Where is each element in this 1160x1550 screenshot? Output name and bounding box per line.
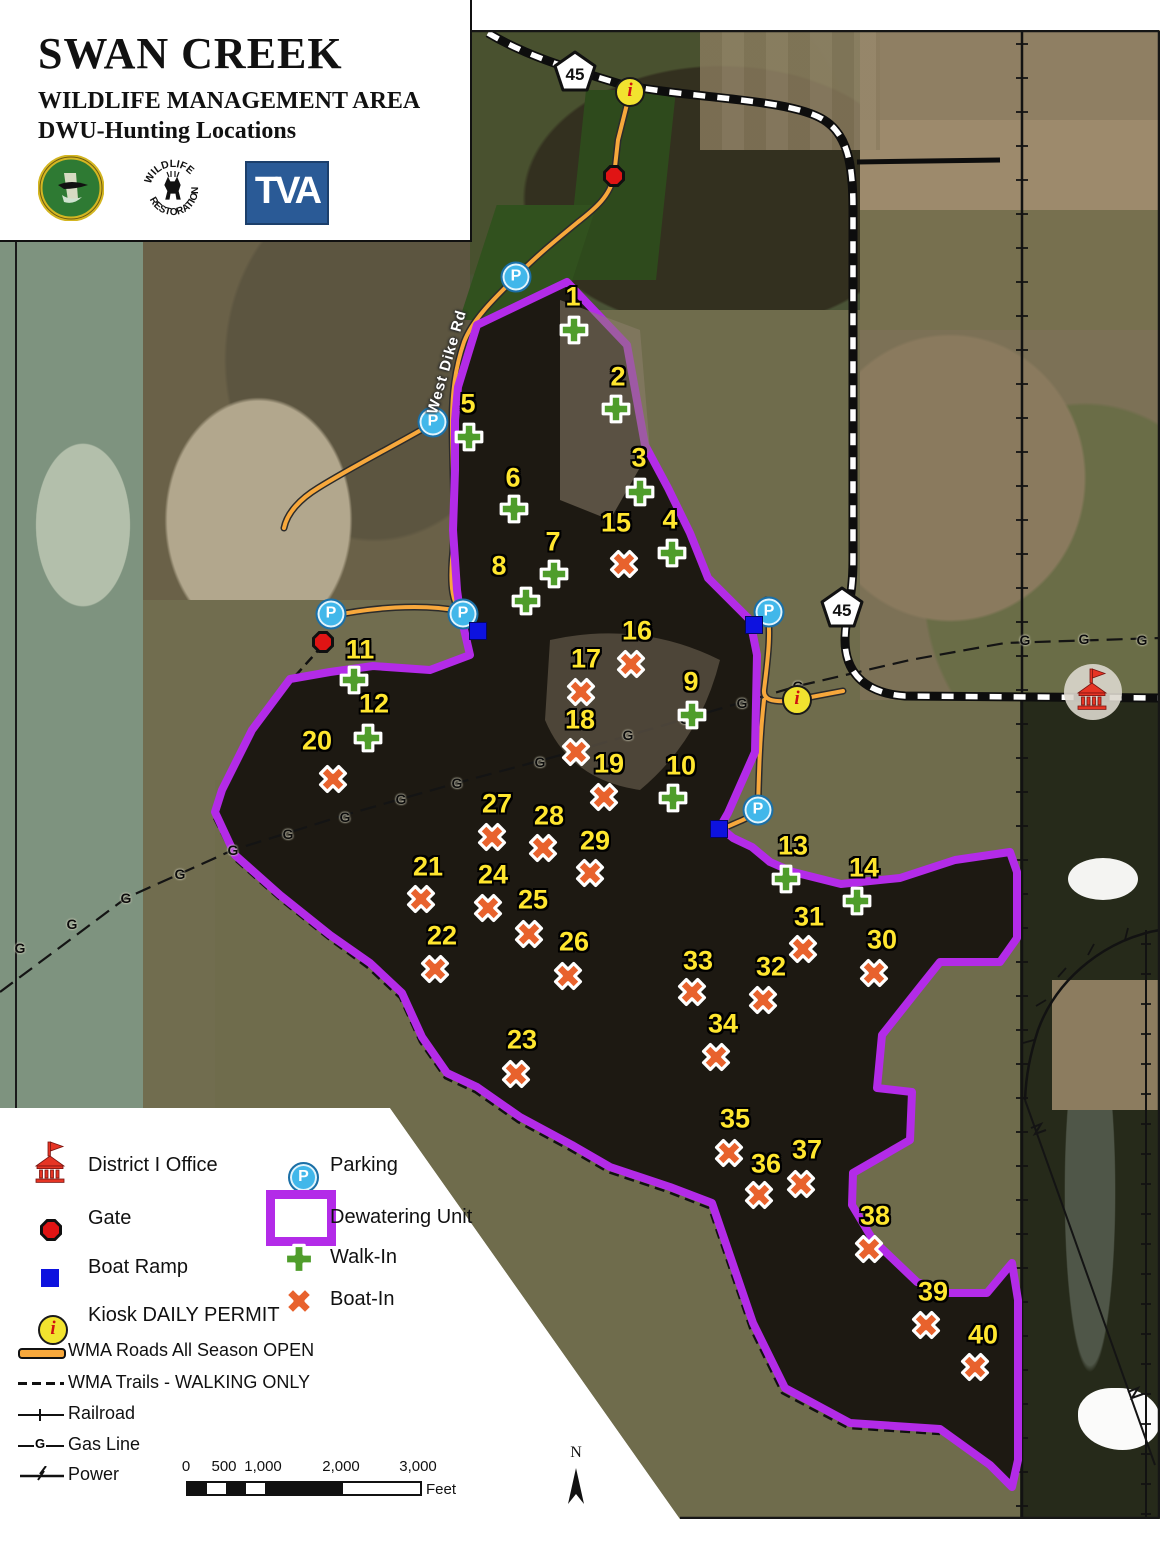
gas-line-label: G [1079,631,1090,647]
legend-label: Railroad [68,1403,135,1424]
marker-number-12: 12 [359,689,389,720]
marker-number-17: 17 [571,644,601,675]
gas-line-label: G [623,727,634,743]
marker-number-16: 16 [622,616,652,647]
parking-icon: P [316,599,347,630]
gasline-icon: G [18,1445,64,1447]
power-icon [18,1466,66,1491]
marker-number-31: 31 [794,902,824,933]
railroad-ticks [1016,44,1151,1514]
marker-number-15: 15 [601,508,631,539]
gas-line-label: G [1137,632,1148,648]
marker-number-13: 13 [778,831,808,862]
kiosk-icon: i [782,685,812,715]
north-arrow: N [556,1444,596,1514]
marker-number-20: 20 [302,726,332,757]
legend-label: Parking [330,1154,398,1177]
wildlife-restoration-logo: WILDLIFE RESTORATION [138,155,208,230]
marker-number-32: 32 [756,952,786,983]
marker-number-40: 40 [968,1320,998,1351]
legend-label: Boat-In [330,1288,394,1311]
legend-label: Boat Ramp [88,1256,188,1279]
walk-in-icon [282,1242,316,1281]
marker-number-7: 7 [545,527,560,558]
map-title: SWAN CREEK [38,28,343,79]
legend-label: Gas Line [68,1434,140,1455]
legend-label: WMA Trails - WALKING ONLY [68,1372,310,1393]
marker-number-28: 28 [534,801,564,832]
power-line-southeast [1025,1100,1155,1465]
svg-text:45: 45 [833,601,852,620]
office-icon [30,1140,70,1189]
marker-number-3: 3 [631,443,646,474]
marker-number-38: 38 [860,1201,890,1232]
marker-number-5: 5 [460,389,475,420]
alabama-wildlife-logo [38,155,104,226]
gas-line-label: G [737,695,748,711]
marker-number-1: 1 [565,282,580,313]
legend-label: District I Office [88,1154,218,1177]
marker-number-8: 8 [491,551,506,582]
logo-row: WILDLIFE RESTORATION TVA [30,155,450,235]
marker-number-35: 35 [720,1104,750,1135]
marker-number-24: 24 [478,860,508,891]
gas-line-label: G [67,916,78,932]
marker-number-11: 11 [346,635,375,666]
gas-line-label: G [121,890,132,906]
scale-tick: 2,000 [322,1458,360,1475]
marker-number-14: 14 [849,853,879,884]
marker-number-22: 22 [427,921,457,952]
marker-number-21: 21 [413,852,443,883]
scale-tick: 1,000 [244,1458,282,1475]
marker-number-36: 36 [751,1149,781,1180]
parking-icon: P [501,262,532,293]
scale-bar: 0 500 1,000 2,000 3,000 Feet [180,1458,510,1506]
gas-line-label: G [340,809,351,825]
gate-icon [40,1219,62,1241]
scale-tick: 3,000 [399,1458,437,1475]
boat-ramp-icon [710,820,728,838]
scale-tick: 0 [182,1458,190,1475]
railroad-branch [1025,930,1160,1100]
scale-unit: Feet [426,1481,456,1498]
gas-line-label: G [1020,632,1031,648]
gas-line-label: G [228,842,239,858]
map-subtitle-1: WILDLIFE MANAGEMENT AREA [38,88,420,115]
legend-label: Power [68,1464,119,1485]
marker-number-10: 10 [666,751,696,782]
boat-ramp-icon [41,1269,59,1287]
scale-tick: 500 [211,1458,236,1475]
gas-line-label: G [175,866,186,882]
north-arrow-icon [556,1462,596,1508]
marker-number-9: 9 [683,667,698,698]
north-label: N [556,1444,596,1462]
deer-silhouette [165,171,180,199]
marker-number-37: 37 [792,1135,822,1166]
gas-line-label: G [452,775,463,791]
marker-number-25: 25 [518,885,548,916]
marker-number-6: 6 [505,463,520,494]
map-page: GGGGGGGGGGGGGGGGGG PPPPPPii 45 45 123456… [0,0,1160,1550]
title-block: SWAN CREEK WILDLIFE MANAGEMENT AREA DWU-… [0,0,472,242]
marker-number-26: 26 [559,927,589,958]
map-subtitle-2: DWU-Hunting Locations [38,118,296,145]
legend-label: Dewatering Unit [330,1206,472,1229]
parking-icon: P [743,795,774,826]
tva-logo: TVA [245,161,329,225]
marker-number-39: 39 [918,1277,948,1308]
marker-number-27: 27 [482,789,512,820]
gas-line-label: G [535,754,546,770]
svg-text:45: 45 [566,65,585,84]
marker-number-29: 29 [580,826,610,857]
kiosk-icon: i [38,1315,68,1345]
legend-label: Gate [88,1207,131,1230]
legend-label: Kiosk DAILY PERMIT [88,1304,280,1327]
marker-number-2: 2 [610,362,625,393]
railroad-icon [18,1414,64,1416]
boat-ramp-icon [469,622,487,640]
marker-number-34: 34 [708,1009,738,1040]
marker-number-33: 33 [683,946,713,977]
kiosk-icon: i [615,77,645,107]
gas-line-label: G [396,791,407,807]
boat-ramp-icon [745,616,763,634]
marker-number-30: 30 [867,925,897,956]
marker-number-23: 23 [507,1025,537,1056]
boat-in-icon [282,1284,316,1323]
marker-number-18: 18 [565,705,595,736]
parking-icon: P [288,1162,319,1193]
scale-bar-graphic [186,1481,422,1496]
side-road [857,160,1000,162]
gas-line-label: G [283,826,294,842]
marker-number-4: 4 [662,505,677,536]
legend-label: Walk-In [330,1246,397,1269]
dewatering-icon [266,1190,336,1246]
legend-label: WMA Roads All Season OPEN [68,1340,314,1361]
marker-number-19: 19 [594,749,624,780]
trail-icon [18,1382,64,1385]
gas-line-label: G [15,940,26,956]
road-icon [18,1348,66,1359]
